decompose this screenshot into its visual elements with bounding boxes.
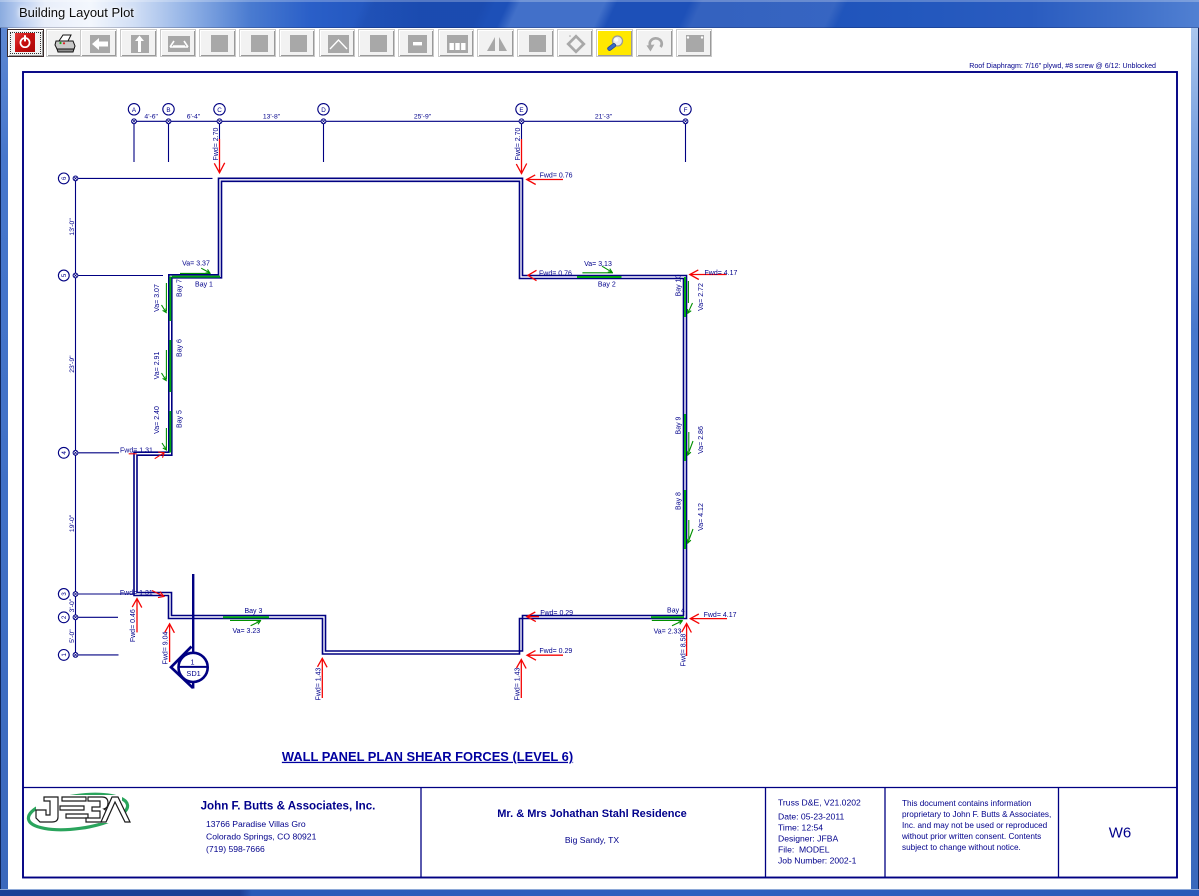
svg-text:13'-8": 13'-8"	[263, 114, 281, 121]
svg-text:F: F	[684, 107, 688, 114]
svg-text:Va= 3.07: Va= 3.07	[154, 284, 161, 312]
svg-text:21'-3": 21'-3"	[595, 114, 613, 121]
svg-text:Job Number: 2002-1: Job Number: 2002-1	[778, 856, 857, 866]
svg-text:Fwd= 4.17: Fwd= 4.17	[704, 612, 737, 619]
svg-text:Va= 3.37: Va= 3.37	[182, 260, 210, 267]
svg-text:Fwd= 1.43: Fwd= 1.43	[514, 667, 521, 700]
svg-text:W6: W6	[1109, 825, 1132, 842]
svg-text:Fwd= 1.43: Fwd= 1.43	[315, 667, 322, 700]
svg-text:Big Sandy, TX: Big Sandy, TX	[565, 835, 619, 845]
svg-text:3: 3	[61, 592, 68, 596]
svg-text:John F. Butts & Associates, In: John F. Butts & Associates, Inc.	[201, 800, 376, 813]
svg-text:File: MODEL: File: MODEL	[778, 845, 830, 855]
svg-text:E: E	[519, 107, 523, 114]
svg-text:Va= 2.72: Va= 2.72	[698, 283, 705, 311]
svg-text:1: 1	[61, 653, 68, 657]
svg-text:5: 5	[61, 273, 68, 277]
svg-text:Bay 4: Bay 4	[667, 608, 685, 615]
svg-text:Date: 05-23-2011: Date: 05-23-2011	[778, 812, 844, 822]
svg-text:This document contains informa: This document contains information	[902, 799, 1032, 808]
svg-text:Va= 4.12: Va= 4.12	[698, 503, 705, 531]
svg-text:Va= 2.40: Va= 2.40	[154, 406, 161, 434]
svg-text:Bay 2: Bay 2	[598, 281, 616, 288]
svg-text:Truss D&E, V21.0202: Truss D&E, V21.0202	[778, 798, 861, 808]
svg-text:13766 Paradise Villas Gro: 13766 Paradise Villas Gro	[206, 819, 306, 829]
svg-text:Fwd= 2.70: Fwd= 2.70	[515, 127, 522, 160]
svg-text:Time: 12:54: Time: 12:54	[778, 823, 823, 833]
svg-text:Fwd= 8.58: Fwd= 8.58	[681, 633, 688, 666]
svg-text:Mr. & Mrs Johathan Stahl Resid: Mr. & Mrs Johathan Stahl Residence	[497, 808, 687, 820]
svg-text:subject to change without noti: subject to change without notice.	[902, 843, 1021, 852]
svg-text:Bay 3: Bay 3	[244, 608, 262, 615]
svg-text:Va= 2.33: Va= 2.33	[654, 629, 682, 636]
svg-text:SD1: SD1	[186, 669, 200, 678]
svg-text:WALL PANEL PLAN SHEAR FORCES (: WALL PANEL PLAN SHEAR FORCES (LEVEL 6)	[282, 749, 573, 764]
svg-text:Fwd= 0.46: Fwd= 0.46	[130, 609, 137, 642]
svg-text:Fwd= 0.76: Fwd= 0.76	[540, 172, 573, 179]
svg-text:Bay 5: Bay 5	[176, 410, 183, 428]
svg-text:19'-0": 19'-0"	[69, 514, 76, 532]
svg-text:25'-9": 25'-9"	[414, 114, 432, 121]
svg-text:B: B	[166, 107, 170, 114]
svg-text:Fwd= 2.70: Fwd= 2.70	[213, 127, 220, 160]
svg-text:Bay 8: Bay 8	[675, 492, 682, 510]
svg-text:Fwd= 0.29: Fwd= 0.29	[540, 610, 573, 617]
svg-text:Fwd= 0.76: Fwd= 0.76	[539, 271, 572, 278]
svg-text:6'-4": 6'-4"	[187, 114, 201, 121]
svg-text:Inc. and may not be used or re: Inc. and may not be used or reproduced	[902, 821, 1048, 830]
svg-text:1: 1	[191, 658, 195, 667]
svg-text:Bay 6: Bay 6	[176, 339, 183, 357]
svg-text:Fwd= 0.29: Fwd= 0.29	[539, 648, 572, 655]
svg-text:5'-0": 5'-0"	[69, 629, 76, 643]
svg-text:23'-9": 23'-9"	[69, 355, 76, 373]
svg-text:6: 6	[61, 176, 68, 180]
svg-text:Fwd= 9.04: Fwd= 9.04	[163, 631, 170, 664]
svg-text:Fwd= 1.31: Fwd= 1.31	[120, 590, 153, 597]
svg-text:Bay 9: Bay 9	[675, 416, 682, 434]
svg-text:Bay 1: Bay 1	[195, 281, 213, 288]
svg-text:Roof Diaphragm: 7/16" plywd, #: Roof Diaphragm: 7/16" plywd, #8 screw @ …	[969, 62, 1156, 70]
svg-text:without prior written consent.: without prior written consent. Contents	[901, 832, 1041, 841]
svg-text:Va= 2.91: Va= 2.91	[154, 352, 161, 380]
svg-text:Bay 7: Bay 7	[176, 279, 183, 297]
svg-text:Colorado Springs, CO 80921: Colorado Springs, CO 80921	[206, 832, 317, 842]
svg-text:Fwd= 4.17: Fwd= 4.17	[705, 270, 738, 277]
svg-text:Designer: JFBA: Designer: JFBA	[778, 834, 838, 844]
svg-text:Va= 3.23: Va= 3.23	[232, 628, 260, 635]
svg-text:4'-6": 4'-6"	[144, 114, 158, 121]
svg-text:C: C	[217, 107, 222, 114]
svg-text:3'-0": 3'-0"	[69, 598, 76, 612]
svg-text:Bay 10: Bay 10	[675, 274, 682, 296]
svg-text:D: D	[321, 107, 326, 114]
svg-text:proprietary to John F. Butts &: proprietary to John F. Butts & Associate…	[902, 810, 1051, 819]
svg-text:Va= 3.13: Va= 3.13	[584, 261, 612, 268]
svg-text:4: 4	[61, 451, 68, 455]
svg-text:2: 2	[61, 615, 68, 619]
svg-text:13'-0": 13'-0"	[69, 218, 76, 236]
svg-text:Va= 2.86: Va= 2.86	[698, 426, 705, 454]
svg-text:(719) 598-7666: (719) 598-7666	[206, 844, 265, 854]
